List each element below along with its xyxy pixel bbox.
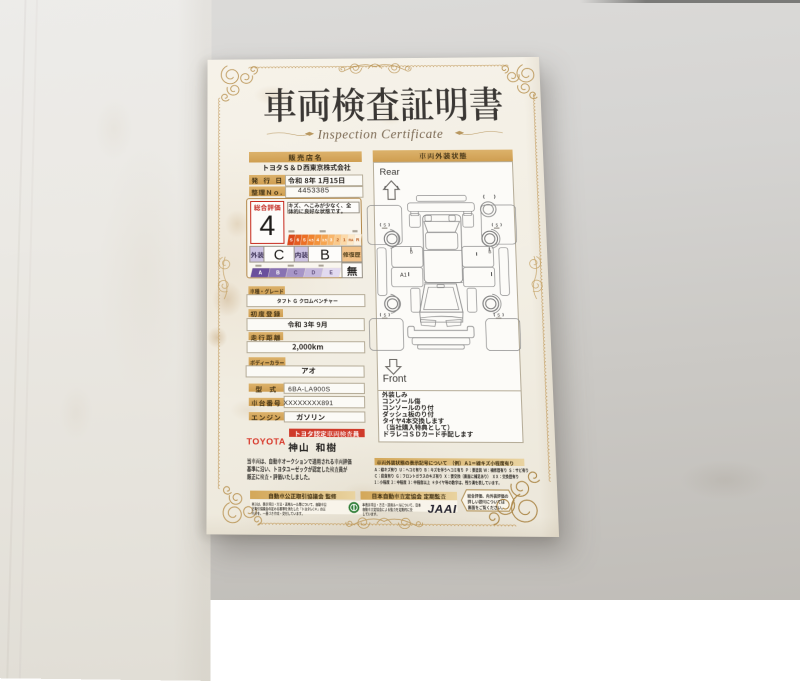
- svg-text:6BA-LA900S: 6BA-LA900S: [288, 385, 330, 393]
- svg-text:Rear: Rear: [379, 166, 399, 176]
- svg-text:JAAI: JAAI: [427, 502, 457, 516]
- svg-text:B: B: [488, 249, 491, 254]
- svg-text:4.5: 4.5: [309, 238, 314, 242]
- svg-text:5: 5: [495, 222, 498, 227]
- svg-text:Front: Front: [383, 373, 407, 384]
- svg-text:5: 5: [384, 222, 387, 227]
- svg-text:XXXXXXXX891: XXXXXXXX891: [283, 399, 333, 407]
- svg-text:Inspection Certificate: Inspection Certificate: [316, 126, 443, 141]
- svg-text:3.5: 3.5: [322, 238, 327, 242]
- svg-text:A1: A1: [400, 272, 407, 278]
- svg-text:4: 4: [259, 210, 275, 241]
- svg-text:B: B: [320, 247, 330, 263]
- svg-text:B: B: [276, 270, 280, 276]
- svg-text:C: C: [274, 247, 285, 263]
- svg-text:A: A: [258, 270, 262, 276]
- svg-text:S: S: [290, 237, 293, 242]
- svg-text:RA: RA: [349, 238, 355, 242]
- svg-text:B: B: [410, 249, 413, 254]
- svg-text:TOYOTA: TOYOTA: [247, 436, 286, 446]
- svg-text:E: E: [329, 270, 332, 276]
- svg-text:4453385: 4453385: [298, 187, 330, 194]
- svg-text:5: 5: [497, 312, 500, 317]
- svg-text:5: 5: [384, 312, 387, 317]
